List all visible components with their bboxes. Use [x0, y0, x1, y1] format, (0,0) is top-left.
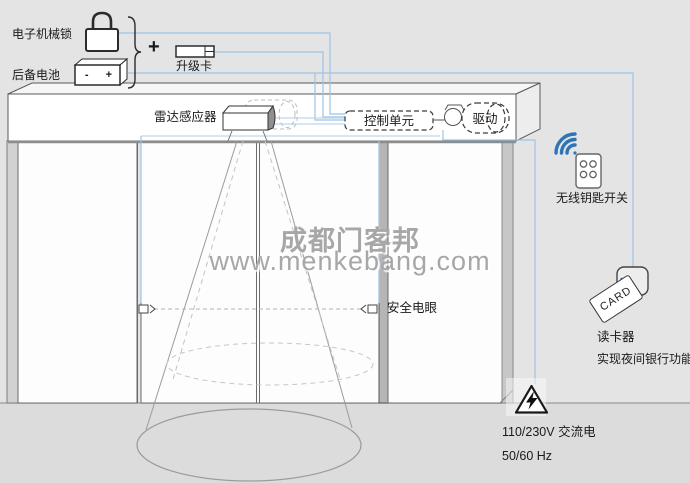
electronic-lock-label: 电子机械锁	[12, 27, 72, 41]
card-reader-note: 实现夜间银行功能	[597, 352, 690, 366]
remote-control-icon	[556, 134, 601, 188]
hazard-triangle-icon	[506, 378, 547, 416]
automatic-door-system-diagram: 电子机械锁 后备电池 - + + 升级卡 雷达感应器 控制单元 驱动 无线钥匙开…	[0, 0, 690, 483]
wifi-arcs-icon	[556, 134, 577, 155]
drive-label: 驱动	[461, 109, 509, 129]
power-voltage-label: 110/230V 交流电	[502, 425, 596, 439]
upgrade-card-label: 升级卡	[176, 59, 212, 73]
power-frequency-label: 50/60 Hz	[502, 449, 552, 463]
upgrade-card-icon	[176, 46, 214, 57]
plus-sign: +	[148, 40, 160, 54]
left-frame-post	[7, 141, 18, 403]
brace-icon	[128, 17, 141, 88]
floor	[0, 403, 690, 483]
control-unit-label: 控制单元	[345, 111, 433, 130]
safety-photocell-label: 安全电眼	[387, 301, 437, 315]
wireless-key-switch-label: 无线钥匙开关	[548, 191, 636, 205]
backup-battery-label: 后备电池	[12, 68, 60, 82]
padlock-icon	[86, 13, 118, 51]
card-reader-label: 读卡器	[597, 330, 635, 344]
watermark-url: www.menkebang.com	[130, 246, 570, 277]
battery-terminals: - +	[76, 66, 124, 84]
radar-sensor-label: 雷达感应器	[154, 110, 217, 124]
left-fixed-panel	[18, 141, 137, 403]
